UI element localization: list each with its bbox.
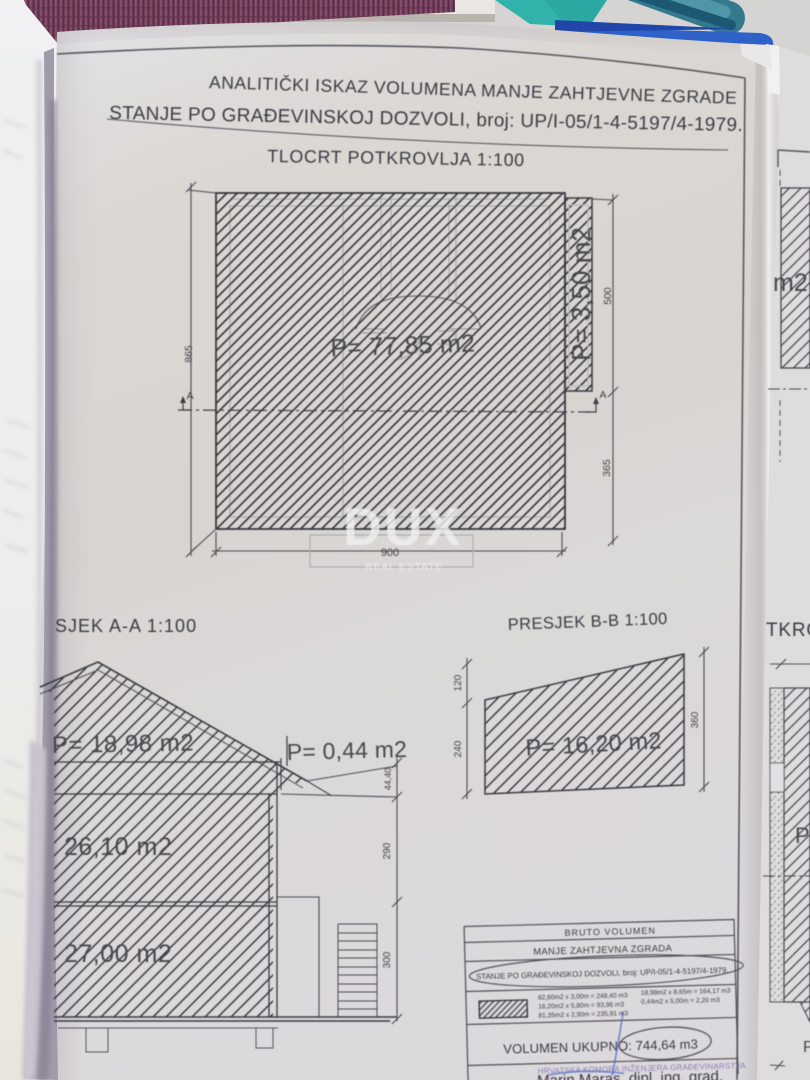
svg-text:300: 300 — [382, 951, 393, 968]
svg-text:A: A — [186, 390, 193, 402]
svg-text:120: 120 — [453, 674, 464, 691]
svg-text:44,40: 44,40 — [383, 768, 393, 791]
svg-text:TLOCRT POTKROVLJA 1:100: TLOCRT POTKROVLJA 1:100 — [267, 146, 525, 170]
svg-text:REAL ESTATE: REAL ESTATE — [365, 561, 443, 573]
svg-text:865: 865 — [183, 345, 195, 363]
svg-text:P=: P= — [795, 823, 810, 848]
svg-text:240: 240 — [453, 740, 464, 757]
svg-text:TKROV: TKROV — [766, 620, 810, 641]
svg-text:360: 360 — [690, 711, 701, 728]
svg-text:m2: m2 — [773, 269, 808, 297]
svg-text:26,10 m2: 26,10 m2 — [64, 833, 172, 861]
svg-text:P= 3,50 m2: P= 3,50 m2 — [566, 227, 596, 361]
svg-text:A: A — [599, 389, 606, 401]
svg-text:P= 0,44 m2: P= 0,44 m2 — [286, 736, 407, 765]
svg-text:DUX: DUX — [343, 498, 462, 557]
svg-text:P= 18,98 m2: P= 18,98 m2 — [52, 730, 195, 759]
svg-text:290: 290 — [382, 842, 393, 859]
svg-text:SJEK A-A 1:100: SJEK A-A 1:100 — [55, 616, 197, 636]
svg-text:27,00 m2: 27,00 m2 — [64, 940, 172, 968]
svg-text:P: P — [803, 1039, 810, 1056]
svg-text:365: 365 — [601, 459, 613, 477]
svg-text:P= 77,85 m2: P= 77,85 m2 — [330, 329, 476, 362]
svg-text:500: 500 — [602, 287, 614, 305]
